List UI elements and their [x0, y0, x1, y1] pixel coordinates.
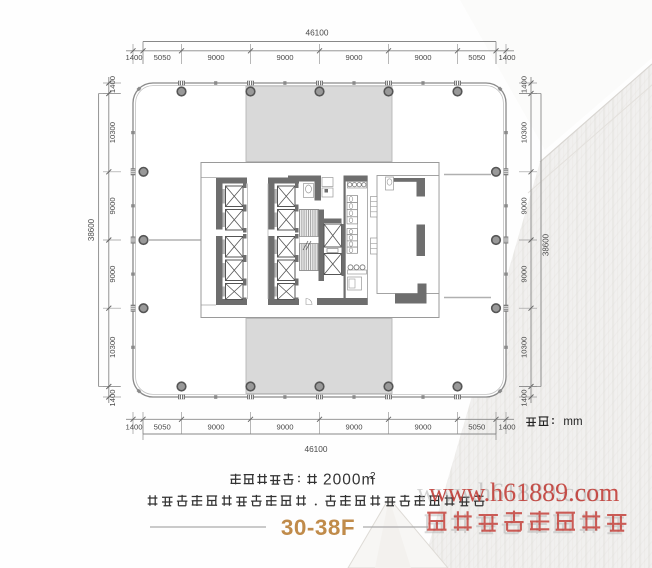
svg-text:10300: 10300 [520, 337, 529, 358]
svg-text:46100: 46100 [304, 444, 327, 454]
svg-text:5050: 5050 [154, 53, 171, 62]
svg-text:2000m: 2000m [323, 472, 375, 489]
svg-text:1400: 1400 [498, 53, 515, 62]
svg-text:10300: 10300 [520, 122, 529, 143]
svg-text:10300: 10300 [108, 337, 117, 358]
svg-text:1400: 1400 [498, 423, 515, 432]
svg-text:9000: 9000 [345, 53, 362, 62]
svg-text:9000: 9000 [520, 197, 529, 214]
svg-text:mm: mm [563, 416, 582, 428]
svg-text:9000: 9000 [520, 266, 529, 283]
svg-text:5050: 5050 [154, 423, 171, 432]
svg-text:9000: 9000 [108, 266, 117, 283]
svg-text:9000: 9000 [276, 423, 293, 432]
svg-text:9000: 9000 [207, 423, 224, 432]
svg-text:9000: 9000 [414, 53, 431, 62]
svg-text:9000: 9000 [414, 423, 431, 432]
svg-text:2: 2 [370, 471, 376, 482]
svg-text:1400: 1400 [108, 389, 117, 406]
svg-text:1400: 1400 [520, 389, 529, 406]
svg-text:30-38F: 30-38F [281, 515, 355, 540]
svg-text:38600: 38600 [542, 233, 551, 256]
svg-text:5050: 5050 [468, 423, 485, 432]
svg-text:1400: 1400 [125, 53, 142, 62]
svg-text:38600: 38600 [87, 218, 96, 241]
svg-text:9000: 9000 [108, 197, 117, 214]
svg-text:9000: 9000 [276, 53, 293, 62]
svg-text:5050: 5050 [468, 53, 485, 62]
svg-text:1400: 1400 [520, 76, 529, 93]
svg-text:10300: 10300 [108, 122, 117, 143]
svg-text:1400: 1400 [125, 423, 142, 432]
svg-text:9000: 9000 [345, 423, 362, 432]
svg-text:46100: 46100 [305, 28, 328, 38]
svg-text:www.h61889.com: www.h61889.com [429, 478, 619, 507]
svg-text:1400: 1400 [108, 76, 117, 93]
svg-text:9000: 9000 [207, 53, 224, 62]
